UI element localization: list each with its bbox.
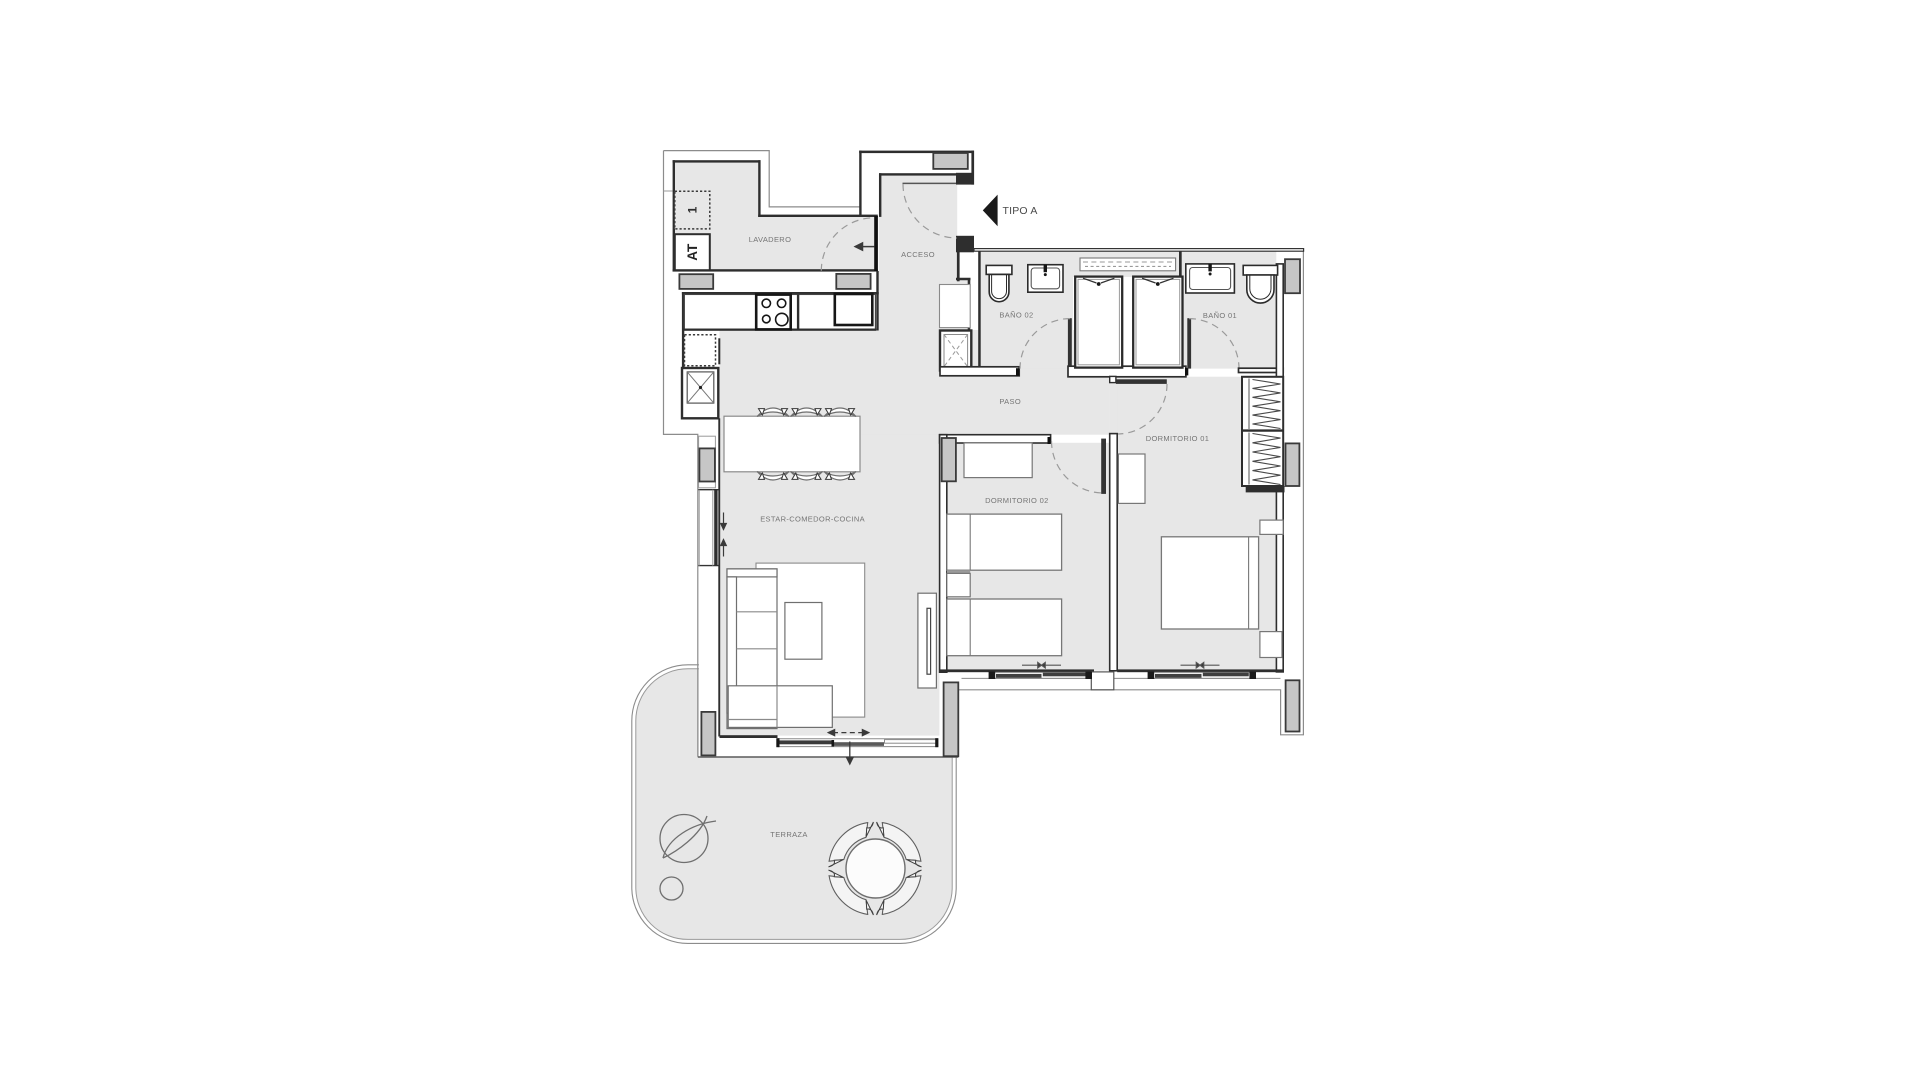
svg-text:TIPO A: TIPO A: [1003, 205, 1038, 217]
svg-text:1: 1: [685, 206, 699, 213]
svg-text:DORMITORIO 01: DORMITORIO 01: [1146, 434, 1210, 443]
svg-text:DORMITORIO 02: DORMITORIO 02: [985, 496, 1049, 505]
svg-text:AT: AT: [685, 243, 700, 261]
svg-text:LAVADERO: LAVADERO: [749, 235, 792, 244]
svg-text:TERRAZA: TERRAZA: [770, 830, 807, 839]
svg-text:BAÑO 01: BAÑO 01: [1203, 311, 1237, 320]
svg-text:BAÑO 02: BAÑO 02: [999, 311, 1033, 320]
svg-text:PASO: PASO: [999, 397, 1021, 406]
svg-text:ESTAR-COMEDOR-COCINA: ESTAR-COMEDOR-COCINA: [760, 515, 865, 524]
svg-text:ACCESO: ACCESO: [901, 250, 935, 259]
